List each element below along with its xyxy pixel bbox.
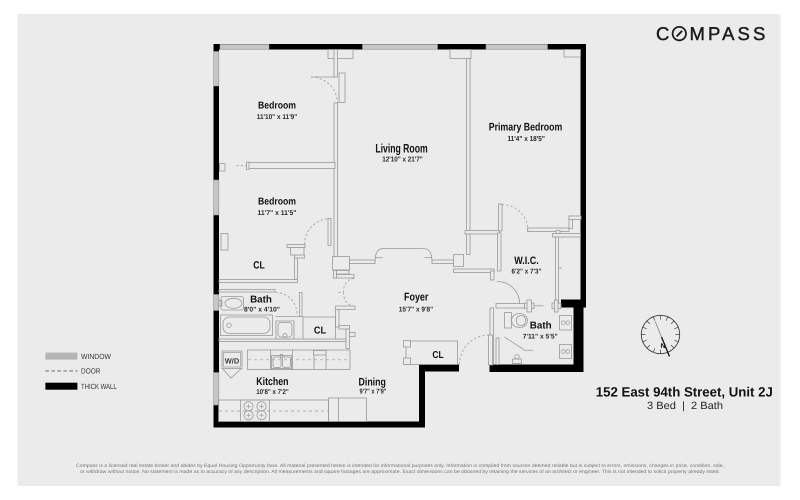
svg-text:or withdraw without notice. No: or withdraw without notice. No statement…: [80, 469, 720, 475]
svg-text:WINDOW: WINDOW: [81, 352, 112, 361]
svg-text:THICK WALL: THICK WALL: [81, 382, 117, 391]
svg-text:W/D: W/D: [225, 356, 240, 365]
svg-text:11'10" x 11'9": 11'10" x 11'9": [257, 114, 298, 121]
svg-text:11'4" x 18'5": 11'4" x 18'5": [507, 134, 545, 143]
svg-text:Bedroom: Bedroom: [258, 197, 296, 208]
svg-text:Living Room: Living Room: [375, 141, 427, 155]
svg-text:CL: CL: [432, 350, 443, 361]
svg-text:CL: CL: [314, 325, 326, 336]
svg-text:Primary Bedroom: Primary Bedroom: [489, 122, 563, 134]
svg-text:3 Bed | 2 Bath: 3 Bed | 2 Bath: [647, 400, 723, 412]
svg-text:Bath: Bath: [530, 321, 552, 332]
svg-text:N: N: [660, 343, 665, 350]
svg-text:Foyer: Foyer: [404, 291, 429, 303]
svg-text:15'7" x 9'8": 15'7" x 9'8": [399, 307, 433, 314]
svg-text:W.I.C.: W.I.C.: [514, 255, 539, 267]
svg-text:MPASS: MPASS: [690, 23, 769, 44]
svg-text:Bedroom: Bedroom: [258, 101, 296, 112]
svg-text:Kitchen: Kitchen: [256, 376, 288, 388]
svg-text:Dining: Dining: [359, 377, 386, 389]
svg-text:7'11" x 5'5": 7'11" x 5'5": [523, 333, 558, 340]
svg-text:Compass is a licensed real est: Compass is a licensed real estate broker…: [76, 463, 724, 469]
svg-text:Bath: Bath: [250, 294, 272, 305]
svg-text:11'7" x 11'5": 11'7" x 11'5": [258, 210, 297, 217]
svg-text:9'7" x 7'9": 9'7" x 7'9": [360, 389, 387, 396]
svg-text:8'0" x 4'10": 8'0" x 4'10": [244, 306, 280, 313]
svg-text:12'10" x 21'7": 12'10" x 21'7": [382, 155, 423, 164]
svg-text:DOOR: DOOR: [81, 367, 101, 376]
svg-text:CL: CL: [253, 260, 265, 272]
svg-text:152 East 94th Street, Unit 2J: 152 East 94th Street, Unit 2J: [596, 384, 773, 399]
svg-text:C: C: [656, 23, 669, 44]
svg-text:6'2" x 7'3": 6'2" x 7'3": [512, 269, 542, 276]
svg-text:10'8" x 7'2": 10'8" x 7'2": [256, 389, 289, 396]
